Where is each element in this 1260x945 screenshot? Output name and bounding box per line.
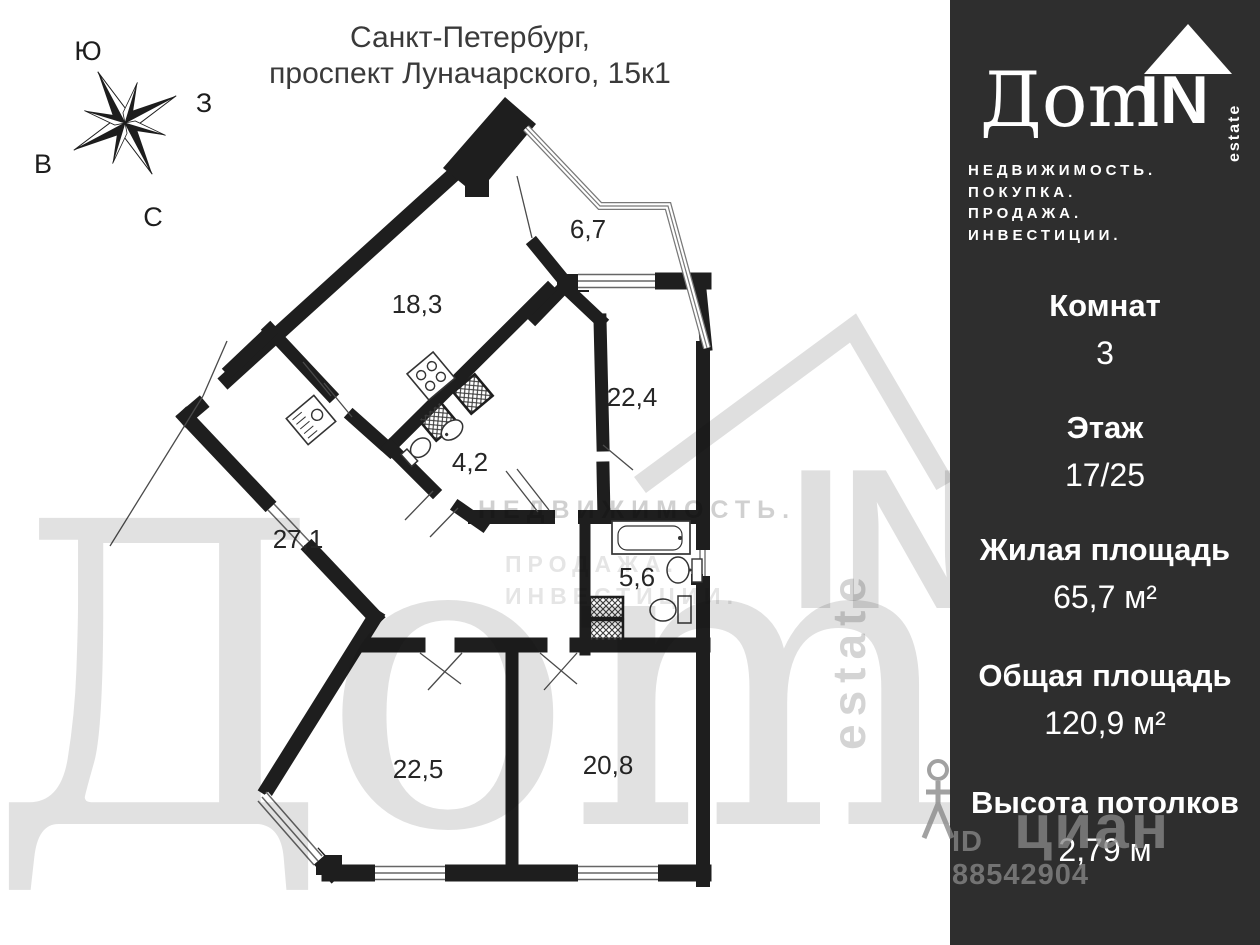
balcony-glazing [526,128,707,348]
room-label-hall: 27,1 [273,524,324,554]
tagline-line: ПОКУПКА. [968,182,1156,204]
stat-label: Общая площадь [950,658,1260,694]
stat-value: 65,7 м² [950,579,1260,616]
tagline-line: ИНВЕСТИЦИИ. [968,225,1156,247]
bath-toilet-icon [650,596,691,623]
bathtub-icon [612,521,690,554]
stat-value: 3 [950,335,1260,372]
logo-in: IN [1140,66,1210,134]
stat-value: 17/25 [950,457,1260,494]
stat-value: 2,79 м [950,832,1260,869]
logo-estate: estate [1226,72,1244,162]
stat-value: 120,9 м² [950,705,1260,742]
tagline-line: НЕДВИЖИМОСТЬ. [968,160,1156,182]
room-label-kitchen-living: 18,3 [392,289,443,319]
stat-label: Жилая площадь [950,532,1260,568]
bath-sink-icon [667,557,702,583]
page: Санкт-Петербург, проспект Луначарского, … [0,0,1260,945]
room-label-bathroom: 5,6 [619,562,655,592]
stat-living-area: Жилая площадь 65,7 м² [950,532,1260,616]
stat-label: Высота потолков [950,785,1260,821]
apex-wall-block [443,97,536,197]
stat-total-area: Общая площадь 120,9 м² [950,658,1260,742]
stat-floor: Этаж 17/25 [950,410,1260,494]
room-label-balcony: 6,7 [570,214,606,244]
stat-rooms: Комнат 3 [950,288,1260,372]
room-label-room2: 22,5 [393,754,444,784]
logo-house-icon: IN estate [1138,20,1238,160]
tagline-line: ПРОДАЖА. [968,203,1156,225]
stat-label: Комнат [950,288,1260,324]
brand-logo: Дom IN estate [950,0,1260,160]
stat-label: Этаж [950,410,1260,446]
sidebar: Дom IN estate НЕДВИЖИМОСТЬ. ПОКУПКА. ПРО… [950,0,1260,945]
stat-ceiling-height: Высота потолков 2,79 м [950,785,1260,869]
room-label-room1: 22,4 [607,382,658,412]
kitchen-sink-icon [286,395,335,444]
room-label-room3: 20,8 [583,750,634,780]
room-label-wc: 4,2 [452,447,488,477]
vent-shaft-icon [590,597,623,641]
logo-word: Дom [980,62,1160,138]
brand-tagline: НЕДВИЖИМОСТЬ. ПОКУПКА. ПРОДАЖА. ИНВЕСТИЦ… [968,160,1156,246]
